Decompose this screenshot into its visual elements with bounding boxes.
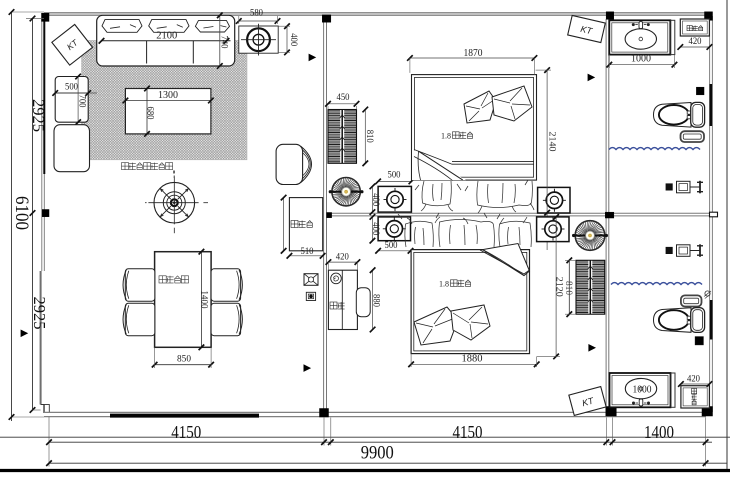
svg-text:810: 810	[365, 130, 375, 143]
svg-text:680: 680	[146, 107, 156, 120]
svg-text:1.8: 1.8	[441, 132, 451, 141]
svg-text:9900: 9900	[361, 443, 394, 464]
svg-text:1400: 1400	[644, 422, 674, 442]
svg-text:2100: 2100	[156, 30, 177, 42]
svg-text:2120: 2120	[553, 277, 563, 297]
svg-text:1300: 1300	[158, 90, 178, 101]
svg-text:500: 500	[385, 240, 398, 250]
svg-text:1870: 1870	[464, 48, 483, 59]
svg-text:700: 700	[77, 95, 87, 108]
svg-text:2140: 2140	[547, 132, 557, 152]
svg-text:6100: 6100	[11, 196, 32, 230]
svg-text:400: 400	[371, 193, 381, 206]
svg-text:400: 400	[289, 33, 299, 46]
svg-text:2925: 2925	[30, 297, 49, 330]
svg-text:2925: 2925	[29, 99, 48, 132]
svg-text:880: 880	[372, 294, 382, 307]
svg-text:510: 510	[301, 246, 314, 256]
svg-text:420: 420	[687, 373, 700, 383]
svg-text:580: 580	[250, 8, 263, 18]
svg-text:500: 500	[65, 81, 78, 91]
svg-text:850: 850	[177, 355, 191, 365]
svg-text:400: 400	[371, 222, 381, 235]
svg-text:1000: 1000	[633, 384, 652, 395]
svg-text:1400: 1400	[199, 291, 209, 309]
svg-text:4150: 4150	[453, 422, 483, 442]
svg-text:1000: 1000	[631, 54, 651, 65]
svg-text:420: 420	[336, 252, 349, 262]
svg-text:1.8: 1.8	[439, 280, 449, 289]
svg-text:4150: 4150	[171, 422, 201, 442]
svg-text:450: 450	[337, 92, 350, 102]
svg-text:500: 500	[388, 170, 401, 180]
svg-text:810: 810	[564, 281, 574, 296]
svg-text:1880: 1880	[462, 353, 483, 364]
svg-text:740: 740	[220, 36, 230, 49]
svg-text:420: 420	[689, 36, 702, 46]
